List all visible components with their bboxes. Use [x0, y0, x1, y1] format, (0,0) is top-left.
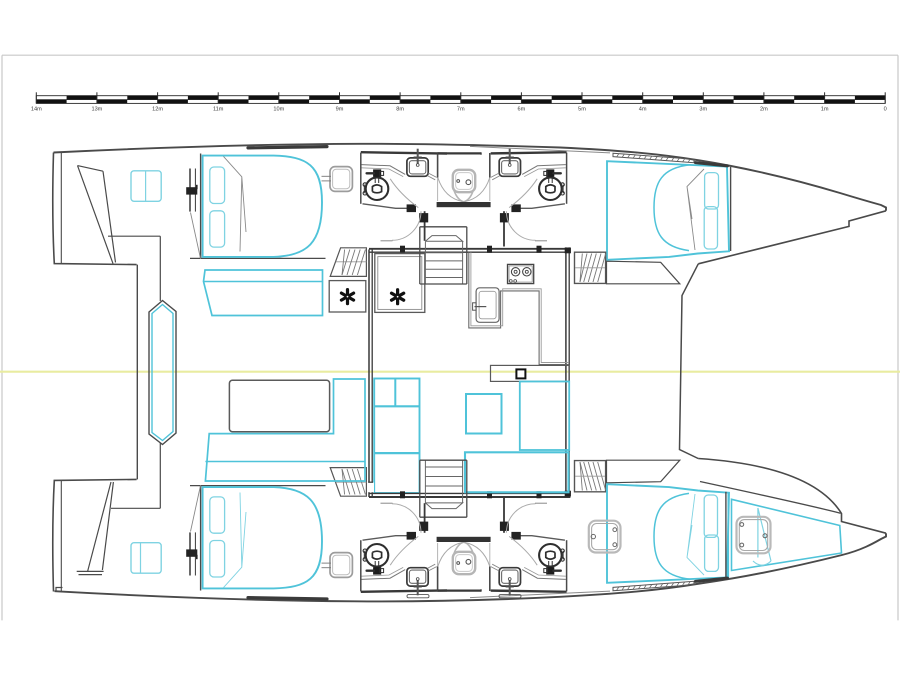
- svg-text:0: 0: [884, 107, 887, 113]
- svg-text:12m: 12m: [152, 107, 163, 113]
- svg-text:13m: 13m: [91, 107, 102, 113]
- svg-text:6m: 6m: [518, 107, 526, 113]
- svg-text:1m: 1m: [821, 107, 829, 113]
- svg-text:5m: 5m: [578, 107, 586, 113]
- svg-text:8m: 8m: [396, 107, 404, 113]
- svg-text:10m: 10m: [273, 107, 284, 113]
- svg-text:2m: 2m: [760, 107, 768, 113]
- svg-text:14m: 14m: [31, 107, 42, 113]
- svg-text:11m: 11m: [213, 107, 224, 113]
- svg-text:4m: 4m: [639, 107, 647, 113]
- svg-text:3m: 3m: [699, 107, 707, 113]
- svg-text:9m: 9m: [336, 107, 344, 113]
- svg-text:7m: 7m: [457, 107, 465, 113]
